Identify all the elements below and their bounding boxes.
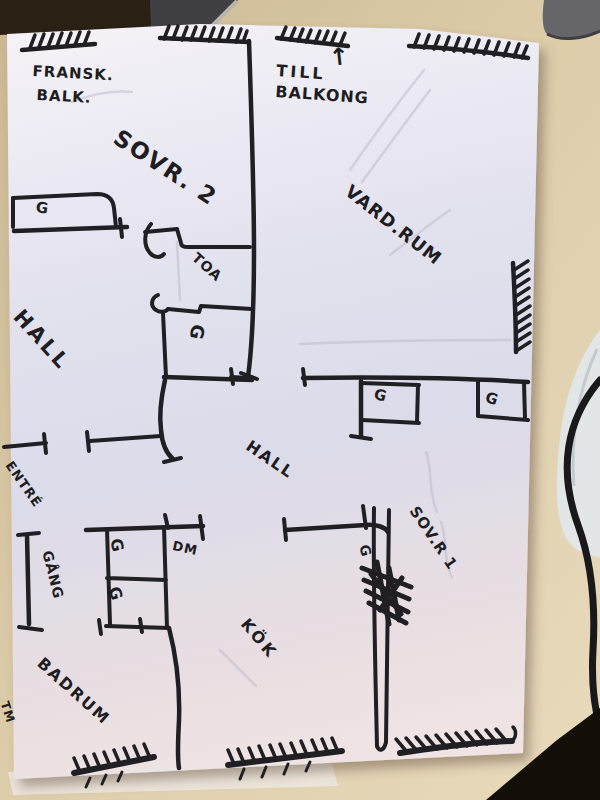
arrow-up-icon: ↑ — [328, 44, 352, 70]
label-g-closet-toa: G — [187, 323, 207, 342]
label-fransk-balk-line1: FRANSK. — [32, 64, 114, 83]
photo-of-floorplan-sketch: FRANSK. BALK. SOVR. 2 TILL ↑ BALKONG VAR… — [0, 0, 600, 800]
label-g-closet-topleft: G — [35, 200, 50, 217]
label-fransk-balk-line2: BALK. — [36, 88, 92, 106]
floorplan-drawing — [0, 0, 600, 800]
laptop-corner — [543, 0, 600, 39]
paper-sheet — [7, 24, 539, 779]
label-till: TILL — [276, 63, 326, 82]
